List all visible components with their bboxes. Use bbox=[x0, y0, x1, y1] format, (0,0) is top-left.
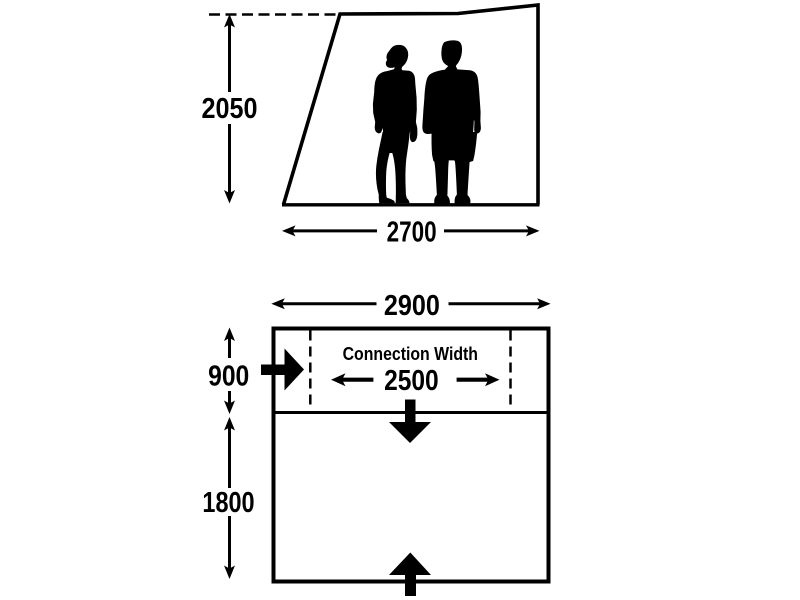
svg-text:900: 900 bbox=[208, 361, 249, 393]
svg-text:2500: 2500 bbox=[384, 365, 439, 397]
svg-text:1800: 1800 bbox=[202, 487, 254, 519]
svg-text:2900: 2900 bbox=[384, 290, 440, 322]
svg-text:Connection Width: Connection Width bbox=[343, 344, 478, 364]
svg-text:2700: 2700 bbox=[387, 217, 437, 249]
svg-text:2050: 2050 bbox=[202, 93, 258, 125]
